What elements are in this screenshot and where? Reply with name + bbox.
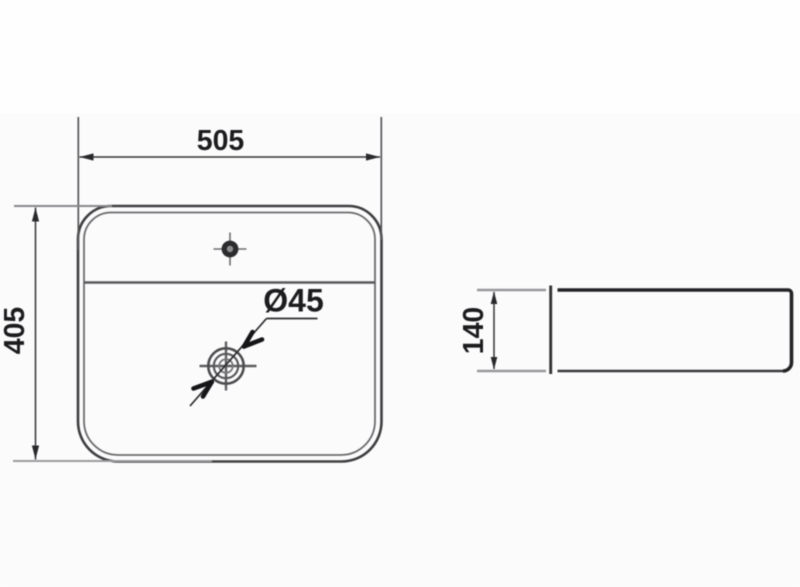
svg-text:140: 140 <box>458 307 490 355</box>
svg-text:505: 505 <box>197 125 245 157</box>
svg-text:Ø45: Ø45 <box>263 283 323 319</box>
svg-text:405: 405 <box>0 307 31 355</box>
